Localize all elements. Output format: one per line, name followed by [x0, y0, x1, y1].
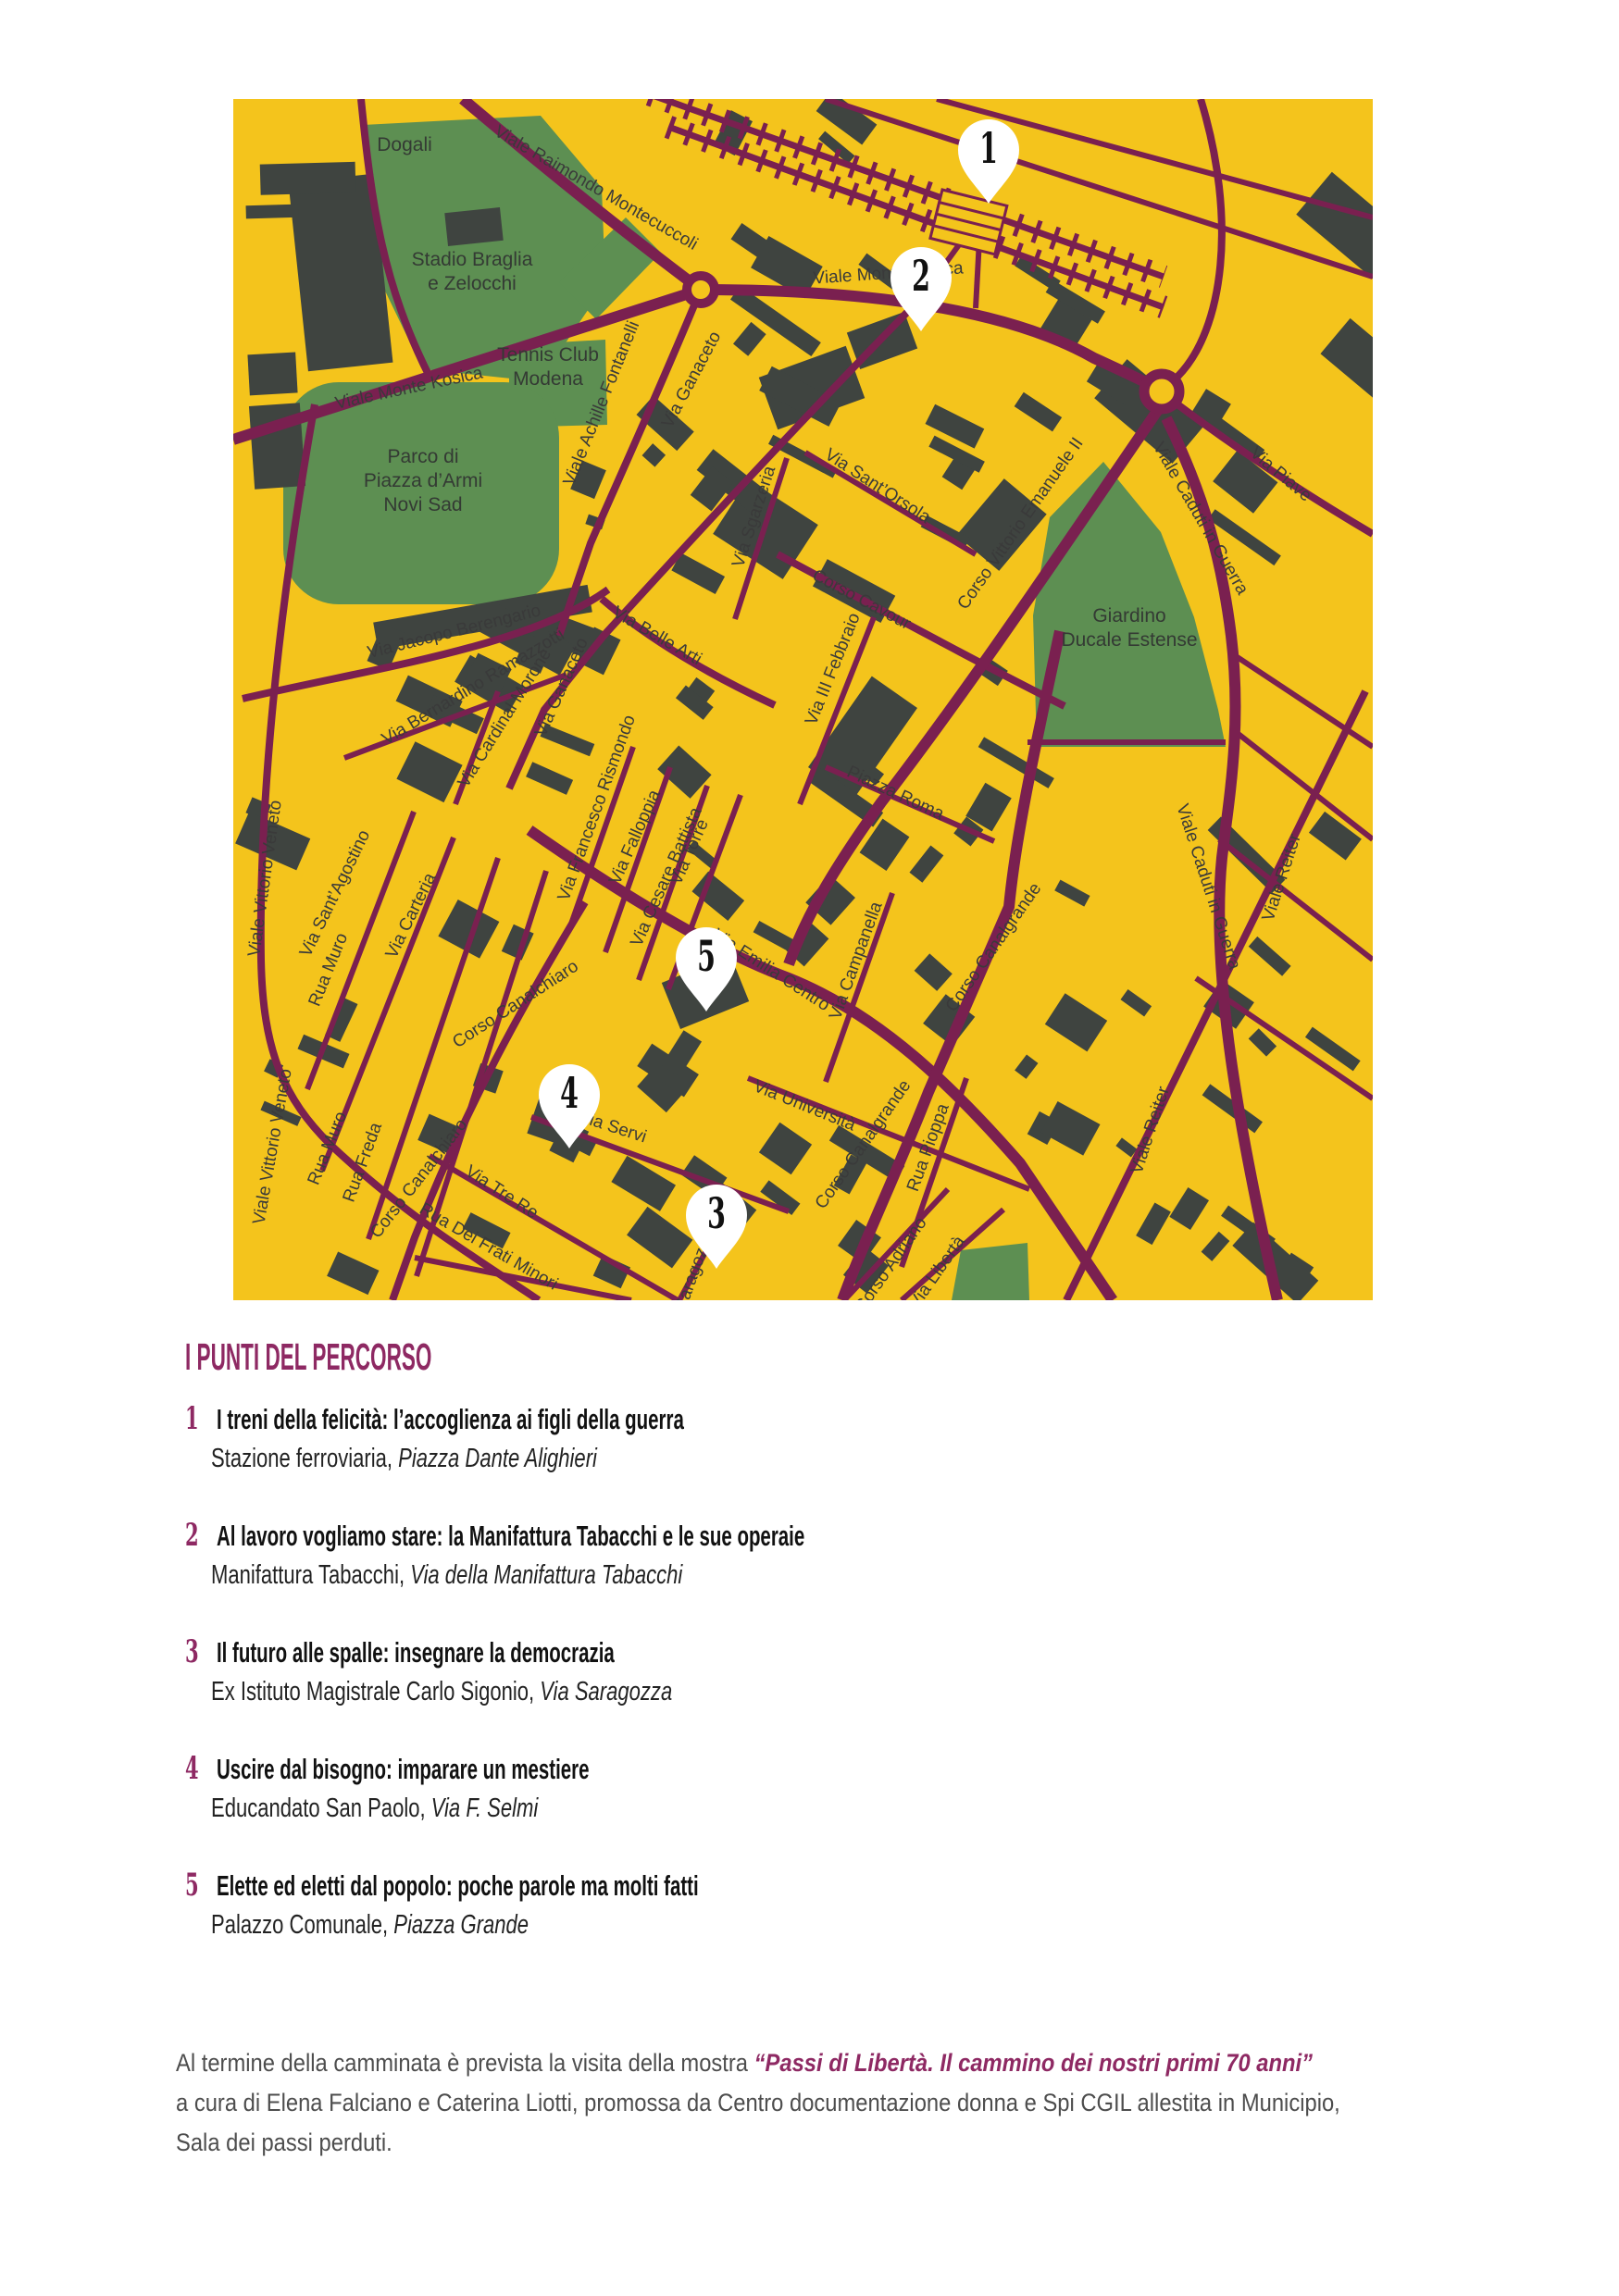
item-number: 1: [185, 1403, 199, 1434]
list-item: 4 Uscire dal bisogno: imparare un mestie…: [185, 1751, 1500, 1829]
city-map: Viale Raimondo MontecuccoliViale Monte K…: [233, 99, 1373, 1300]
marker-number: 4: [560, 1069, 579, 1119]
item-number: 5: [185, 1869, 199, 1901]
area-label: Dogali: [377, 134, 432, 155]
route-points-section: I PUNTI DEL PERCORSO 1 I treni della fel…: [185, 1336, 1500, 1984]
item-location: Palazzo Comunale, Piazza Grande: [211, 1905, 1500, 1945]
item-location: Ex Istituto Magistrale Carlo Sigonio, Vi…: [211, 1671, 1500, 1712]
item-title: I treni della felicità: l’accoglienza ai…: [217, 1401, 1500, 1438]
item-title: Uscire dal bisogno: imparare un mestiere: [217, 1751, 1500, 1788]
item-title: Al lavoro vogliamo stare: la Manifattura…: [217, 1518, 1500, 1555]
flyer-page: { "map": { "colors": { "background_yello…: [0, 0, 1619, 2296]
item-location: Manifattura Tabacchi, Via della Manifatt…: [211, 1555, 1500, 1595]
map-svg: Viale Raimondo MontecuccoliViale Monte K…: [233, 99, 1373, 1300]
marker-number: 1: [979, 124, 998, 174]
list-item: 5 Elette ed eletti dal popolo: poche par…: [185, 1868, 1500, 1945]
list-item: 2 Al lavoro vogliamo stare: la Manifattu…: [185, 1518, 1500, 1595]
route-points-list: 1 I treni della felicità: l’accoglienza …: [185, 1401, 1500, 1945]
exhibition-note: Al termine della camminata è prevista la…: [176, 2043, 1583, 2163]
item-title: Il futuro alle spalle: insegnare la demo…: [217, 1634, 1500, 1671]
roundabout-largo-garibaldi: [1144, 374, 1179, 409]
list-item: 1 I treni della felicità: l’accoglienza …: [185, 1401, 1500, 1479]
item-number: 3: [185, 1636, 199, 1668]
item-number: 4: [185, 1753, 199, 1784]
marker-number: 5: [697, 932, 716, 982]
item-title: Elette ed eletti dal popolo: poche parol…: [217, 1868, 1500, 1905]
exhibition-title: “Passi di Libertà. Il cammino dei nostri…: [754, 2049, 1313, 2077]
marker-number: 3: [707, 1189, 726, 1239]
item-location: Stazione ferroviaria, Piazza Dante Aligh…: [211, 1438, 1500, 1479]
item-number: 2: [185, 1520, 199, 1551]
list-item: 3 Il futuro alle spalle: insegnare la de…: [185, 1634, 1500, 1712]
section-title: I PUNTI DEL PERCORSO: [185, 1336, 1500, 1377]
roundabout-kosica: [687, 276, 715, 304]
item-location: Educandato San Paolo, Via F. Selmi: [211, 1788, 1500, 1829]
marker-number: 2: [912, 252, 930, 302]
